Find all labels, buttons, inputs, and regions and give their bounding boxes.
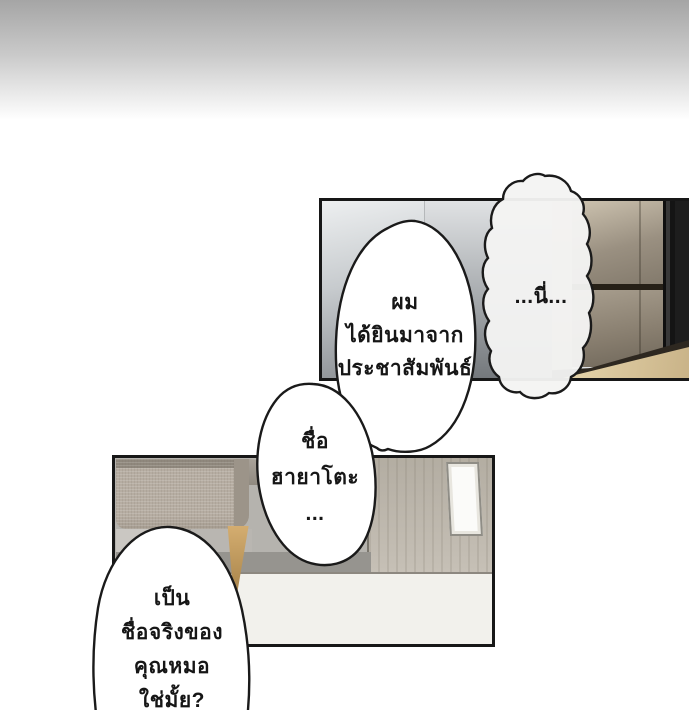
- closet-door-upper: [572, 201, 663, 284]
- bubble-name-text: ชื่อ ฮายาโตะ ...: [250, 424, 380, 532]
- bubble-question-text: เป็น ชื่อจริงของ คุณหมอ ใช่มั้ย?: [92, 582, 252, 710]
- room-sofa: [116, 459, 249, 529]
- comic-page: ...นี่... ผม ได้ยินมาจาก ประชาสัมพันธ์ ช…: [0, 0, 689, 710]
- bubble-name-line: ฮายาโตะ: [250, 460, 380, 496]
- top-fade-gradient: [0, 0, 689, 120]
- room-sofa-side: [234, 459, 249, 529]
- bubble-nii-line: ...นี่...: [476, 282, 606, 312]
- bubble-heard-line: ผม: [325, 286, 485, 319]
- bubble-question-line: คุณหมอ: [92, 650, 252, 684]
- bubble-heard-text: ผม ได้ยินมาจาก ประชาสัมพันธ์: [325, 286, 485, 385]
- bubble-heard-line: ได้ยินมาจาก: [325, 319, 485, 352]
- bubble-name-line: ...: [250, 496, 380, 532]
- bubble-nii-text: ...นี่...: [476, 282, 606, 312]
- bubble-heard-line: ประชาสัมพันธ์: [325, 352, 485, 385]
- bubble-name-line: ชื่อ: [250, 424, 380, 460]
- room-door-window: [446, 462, 483, 536]
- bubble-question-line: ชื่อจริงของ: [92, 616, 252, 650]
- bubble-question-line: ใช่มั้ย?: [92, 684, 252, 710]
- bubble-question-line: เป็น: [92, 582, 252, 616]
